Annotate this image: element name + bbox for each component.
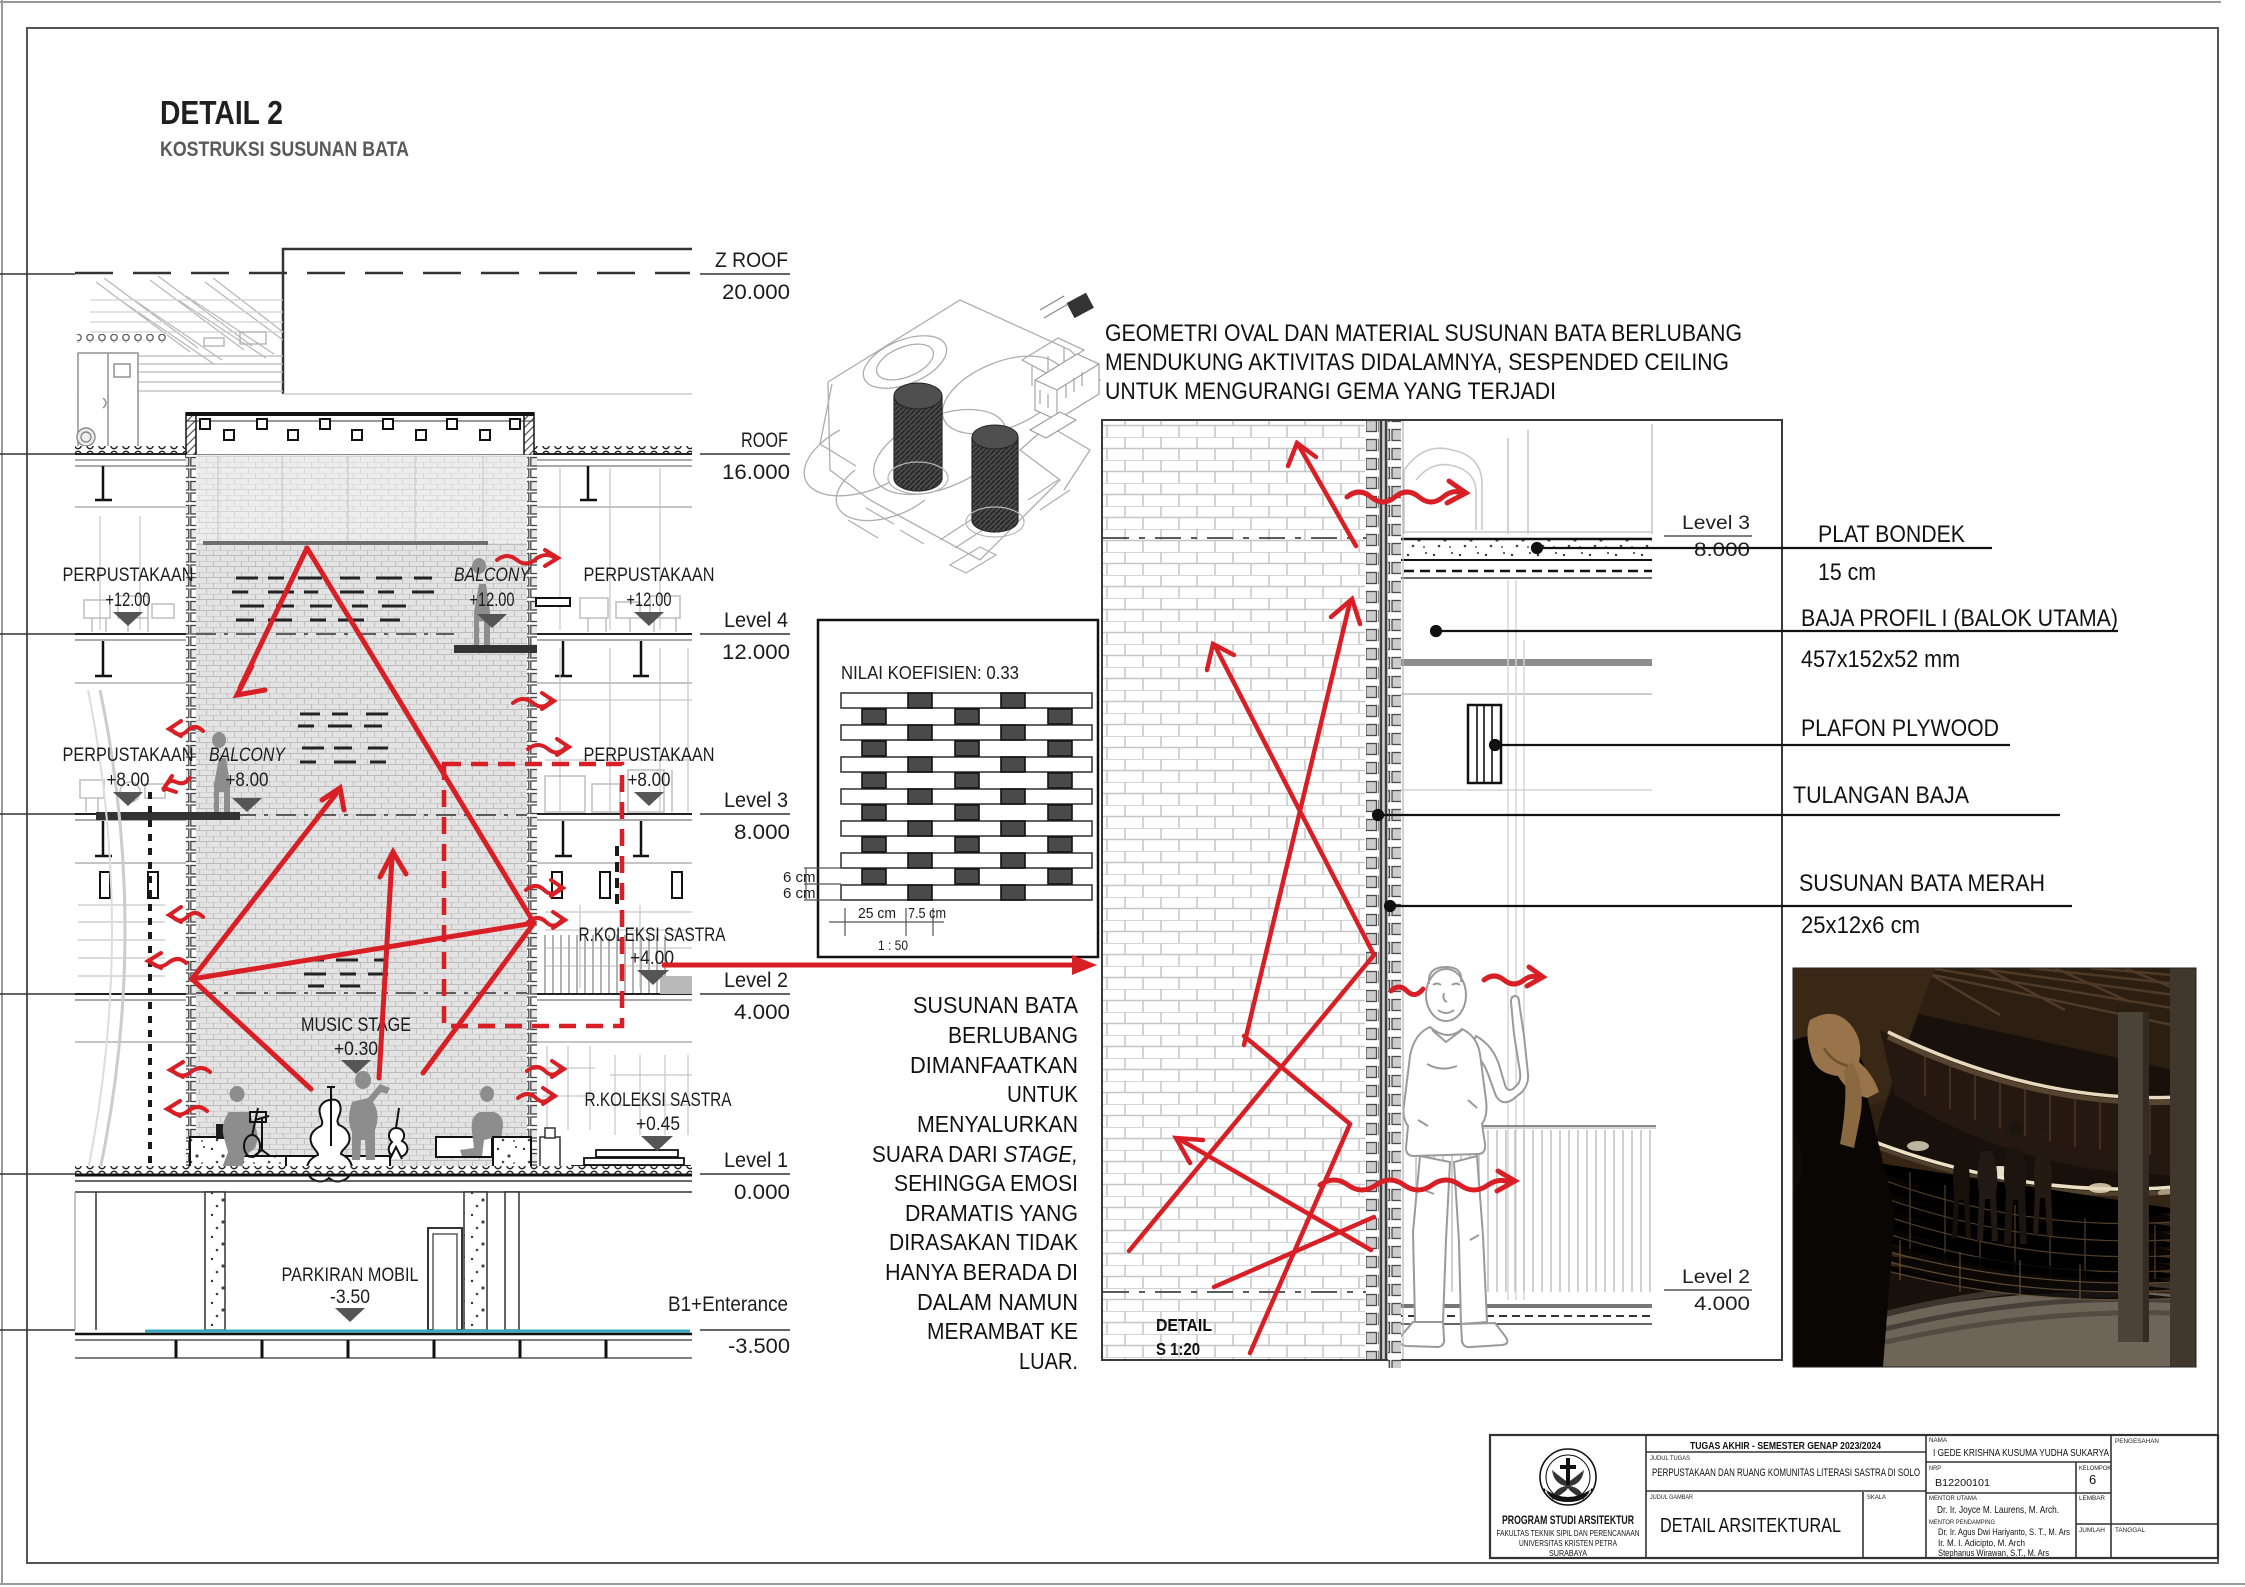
svg-text:15 cm: 15 cm [1818, 559, 1876, 586]
svg-text:16.000: 16.000 [722, 461, 790, 484]
svg-text:BAJA PROFIL I (BALOK UTAMA): BAJA PROFIL I (BALOK UTAMA) [1801, 605, 2118, 632]
svg-text:UNIVERSITAS KRISTEN PETRA: UNIVERSITAS KRISTEN PETRA [1519, 1538, 1617, 1548]
svg-text:PERPUSTAKAAN DAN RUANG KOMUNIT: PERPUSTAKAAN DAN RUANG KOMUNITAS LITERAS… [1652, 1467, 1920, 1479]
svg-text:25 cm: 25 cm [858, 905, 896, 922]
svg-text:Z ROOF: Z ROOF [715, 249, 788, 272]
svg-text:6 cm: 6 cm [783, 885, 816, 902]
svg-text:R.KOLEKSI SASTRA: R.KOLEKSI SASTRA [585, 1089, 732, 1111]
svg-text:PENGESAHAN: PENGESAHAN [2115, 1438, 2159, 1445]
svg-text:MENTOR PENDAMPING: MENTOR PENDAMPING [1929, 1519, 1995, 1526]
svg-text:+8.00: +8.00 [226, 769, 269, 791]
svg-text:LUAR.: LUAR. [1019, 1348, 1078, 1374]
svg-text:+12.00: +12.00 [470, 589, 515, 611]
svg-text:MERAMBAT KE: MERAMBAT KE [927, 1318, 1078, 1344]
svg-text:SEHINGGA EMOSI: SEHINGGA EMOSI [894, 1170, 1078, 1196]
svg-text:Level 4: Level 4 [724, 609, 788, 632]
svg-text:1 : 50: 1 : 50 [878, 937, 908, 953]
svg-text:Dr. Ir. Agus Dwi Hariyanto, S.: Dr. Ir. Agus Dwi Hariyanto, S. T., M. Ar… [1938, 1527, 2070, 1538]
svg-text:MUSIC STAGE: MUSIC STAGE [301, 1014, 411, 1036]
svg-text:+12.00: +12.00 [627, 589, 672, 611]
svg-text:DIRASAKAN TIDAK: DIRASAKAN TIDAK [889, 1229, 1078, 1255]
svg-text:SKALA: SKALA [1867, 1494, 1887, 1501]
svg-text:JUMLAH: JUMLAH [2079, 1527, 2105, 1534]
svg-text:12.000: 12.000 [722, 641, 790, 664]
svg-text:DETAIL: DETAIL [1156, 1315, 1212, 1335]
svg-text:+0.45: +0.45 [636, 1113, 680, 1135]
svg-text:KELOMPOK: KELOMPOK [2079, 1465, 2112, 1472]
svg-text:Level 2: Level 2 [724, 969, 788, 992]
svg-text:+12.00: +12.00 [106, 589, 151, 611]
svg-text:Stephanus Wirawan, S.T., M. Ar: Stephanus Wirawan, S.T., M. Ars [1938, 1548, 2049, 1559]
svg-text:PLAFON PLYWOOD: PLAFON PLYWOOD [1801, 715, 1999, 742]
svg-text:+0.30: +0.30 [334, 1038, 378, 1060]
svg-text:B1+Enterance: B1+Enterance [668, 1293, 788, 1316]
svg-text:B12200101: B12200101 [1935, 1477, 1990, 1489]
svg-text:LEMBAR: LEMBAR [2079, 1495, 2105, 1502]
svg-text:PERPUSTAKAAN: PERPUSTAKAAN [63, 564, 194, 586]
svg-text:SUARA DARI STAGE,: SUARA DARI STAGE, [872, 1141, 1078, 1167]
svg-text:S 1:20: S 1:20 [1156, 1339, 1200, 1359]
svg-text:BERLUBANG: BERLUBANG [948, 1022, 1078, 1048]
svg-text:UNTUK MENGURANGI GEMA YANG TER: UNTUK MENGURANGI GEMA YANG TERJADI [1105, 378, 1556, 405]
svg-text:BALCONY: BALCONY [209, 744, 287, 766]
svg-text:ROOF: ROOF [741, 429, 788, 452]
svg-text:457x152x52 mm: 457x152x52 mm [1801, 646, 1960, 673]
svg-text:SUSUNAN BATA: SUSUNAN BATA [913, 992, 1078, 1018]
svg-text:NILAI KOEFISIEN: 0.33: NILAI KOEFISIEN: 0.33 [841, 663, 1019, 683]
svg-text:JUDUL GAMBAR: JUDUL GAMBAR [1650, 1494, 1693, 1501]
svg-text:4.000: 4.000 [1694, 1294, 1750, 1315]
svg-text:20.000: 20.000 [722, 281, 790, 304]
svg-text:PERPUSTAKAAN: PERPUSTAKAAN [63, 744, 194, 766]
svg-text:TUGAS AKHIR - SEMESTER GENAP 2: TUGAS AKHIR - SEMESTER GENAP 2023/2024 [1690, 1441, 1881, 1452]
svg-text:DETAIL ARSITEKTURAL: DETAIL ARSITEKTURAL [1660, 1514, 1841, 1537]
svg-text:DETAIL 2: DETAIL 2 [160, 94, 283, 131]
svg-text:DRAMATIS YANG: DRAMATIS YANG [905, 1200, 1078, 1226]
svg-text:PERPUSTAKAAN: PERPUSTAKAAN [584, 744, 715, 766]
svg-text:DALAM NAMUN: DALAM NAMUN [917, 1289, 1078, 1315]
svg-text:8.000: 8.000 [1694, 540, 1750, 561]
svg-text:GEOMETRI OVAL DAN MATERIAL SUS: GEOMETRI OVAL DAN MATERIAL SUSUNAN BATA … [1105, 320, 1742, 347]
svg-text:NAMA: NAMA [1929, 1437, 1948, 1444]
svg-text:Level 2: Level 2 [1682, 1267, 1750, 1288]
svg-text:KOSTRUKSI SUSUNAN BATA: KOSTRUKSI SUSUNAN BATA [160, 138, 409, 161]
svg-text:Level 3: Level 3 [724, 789, 788, 812]
svg-text:R.KOLEKSI SASTRA: R.KOLEKSI SASTRA [579, 924, 726, 946]
svg-text:+8.00: +8.00 [107, 769, 150, 791]
svg-text:UNTUK: UNTUK [1007, 1081, 1078, 1107]
svg-text:7.5 cm: 7.5 cm [908, 905, 946, 922]
svg-text:SURABAYA: SURABAYA [1549, 1548, 1587, 1558]
svg-text:6: 6 [2089, 1472, 2096, 1487]
svg-text:4.000: 4.000 [734, 1001, 790, 1024]
svg-text:6 cm: 6 cm [783, 869, 816, 886]
svg-text:-3.50: -3.50 [330, 1286, 370, 1308]
svg-text:+8.00: +8.00 [628, 769, 671, 791]
svg-text:HANYA BERADA DI: HANYA BERADA DI [885, 1259, 1078, 1285]
svg-text:PERPUSTAKAAN: PERPUSTAKAAN [584, 564, 715, 586]
svg-text:Level 3: Level 3 [1682, 513, 1750, 534]
svg-text:NRP: NRP [1929, 1465, 1941, 1472]
svg-text:BALCONY: BALCONY [454, 564, 532, 586]
svg-text:PARKIRAN MOBIL: PARKIRAN MOBIL [282, 1264, 419, 1286]
svg-text:Level 1: Level 1 [724, 1149, 788, 1172]
svg-text:MENDUKUNG AKTIVITAS DIDALAMNYA: MENDUKUNG AKTIVITAS DIDALAMNYA, SESPENDE… [1105, 349, 1729, 376]
svg-text:0.000: 0.000 [734, 1181, 790, 1204]
svg-text:-3.500: -3.500 [728, 1335, 790, 1358]
svg-text:DIMANFAATKAN: DIMANFAATKAN [910, 1052, 1078, 1078]
svg-text:TANGGAL: TANGGAL [2115, 1527, 2145, 1534]
svg-text:Dr. Ir. Joyce M. Laurens, M. A: Dr. Ir. Joyce M. Laurens, M. Arch. [1937, 1504, 2059, 1516]
svg-text:I GEDE KRISHNA KUSUMA YUDHA SU: I GEDE KRISHNA KUSUMA YUDHA SUKARYA [1933, 1448, 2109, 1459]
svg-text:MENYALURKAN: MENYALURKAN [917, 1111, 1078, 1137]
svg-text:8.000: 8.000 [734, 821, 790, 844]
svg-text:JUDUL TUGAS: JUDUL TUGAS [1650, 1455, 1691, 1462]
svg-text:PROGRAM STUDI ARSITEKTUR: PROGRAM STUDI ARSITEKTUR [1502, 1515, 1635, 1527]
svg-text:FAKULTAS TEKNIK SIPIL DAN PERE: FAKULTAS TEKNIK SIPIL DAN PERENCANAAN [1497, 1528, 1640, 1538]
svg-text:TULANGAN BAJA: TULANGAN BAJA [1793, 782, 1969, 809]
svg-text:PLAT BONDEK: PLAT BONDEK [1818, 521, 1965, 548]
svg-text:MENTOR UTAMA: MENTOR UTAMA [1929, 1495, 1978, 1502]
svg-text:25x12x6 cm: 25x12x6 cm [1801, 912, 1920, 939]
svg-text:SUSUNAN BATA MERAH: SUSUNAN BATA MERAH [1799, 870, 2045, 897]
